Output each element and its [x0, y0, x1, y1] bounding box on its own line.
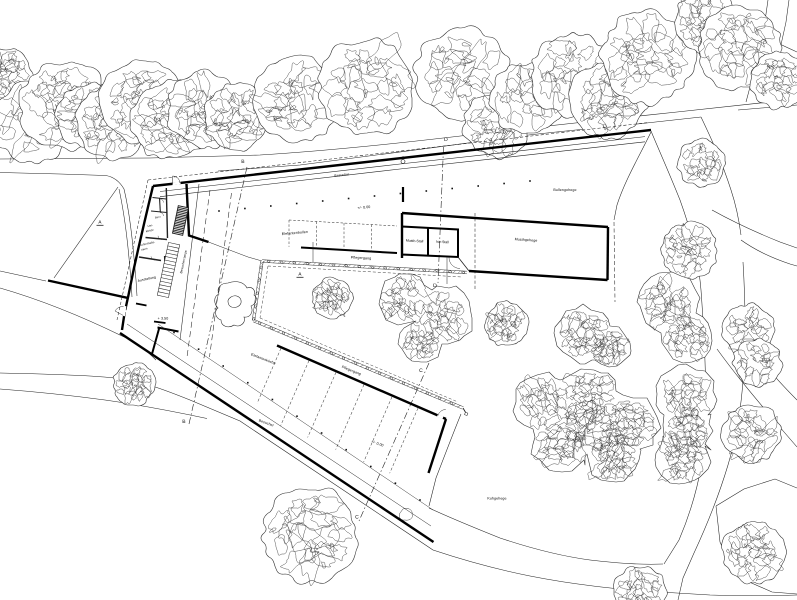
svg-text:Kuhgehege: Kuhgehege [487, 497, 506, 501]
svg-text:C: C [355, 515, 359, 521]
svg-text:Iso-Stall: Iso-Stall [436, 240, 449, 245]
svg-text:B: B [241, 159, 245, 165]
svg-text:Bullengehege: Bullengehege [553, 188, 576, 192]
svg-text:D: D [433, 283, 437, 289]
svg-text:C: C [419, 368, 423, 374]
svg-text:+ 3.50: + 3.50 [158, 317, 169, 321]
svg-text:B: B [182, 419, 186, 425]
svg-text:D: D [444, 137, 448, 143]
